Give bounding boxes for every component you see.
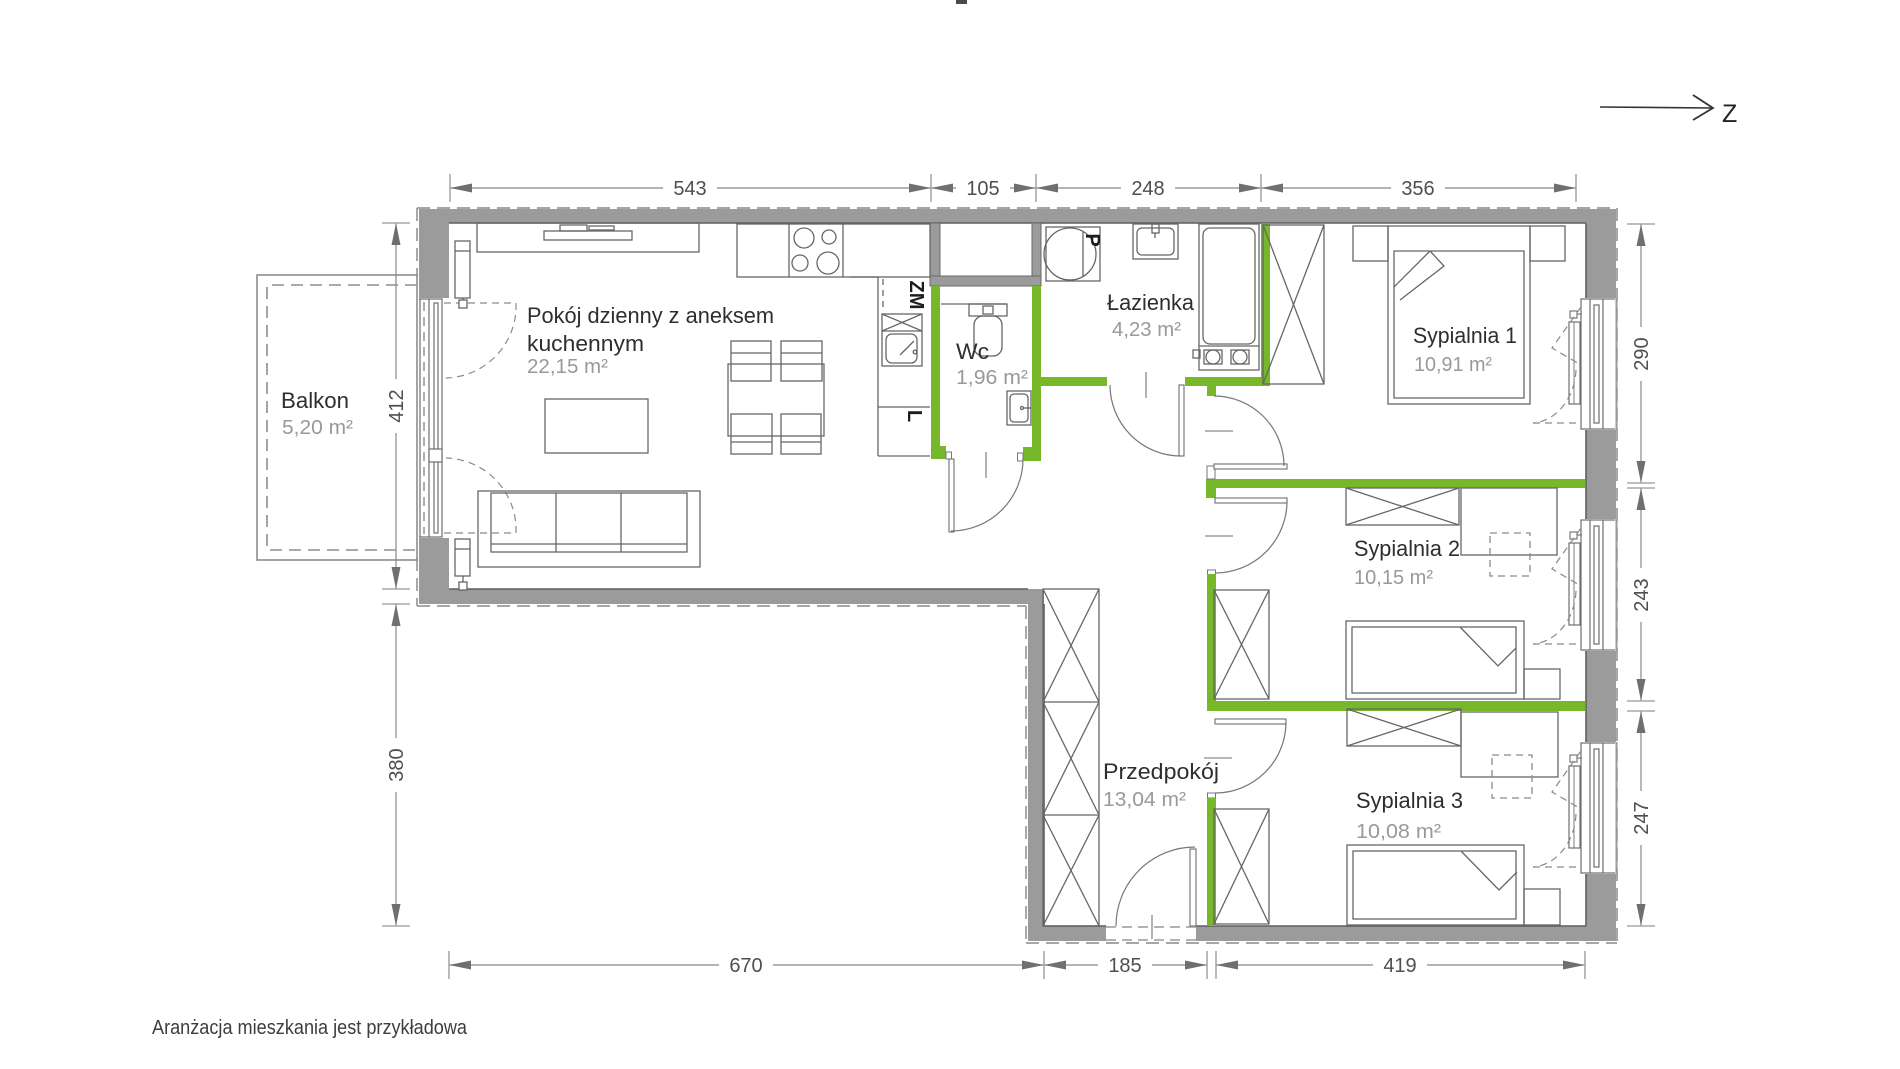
svg-text:670: 670 bbox=[729, 955, 762, 977]
svg-text:L: L bbox=[903, 410, 925, 422]
svg-text:5,20 m²: 5,20 m² bbox=[282, 416, 353, 439]
svg-text:10,91 m²: 10,91 m² bbox=[1414, 353, 1492, 376]
svg-text:543: 543 bbox=[673, 178, 706, 200]
svg-text:Przedpokój: Przedpokój bbox=[1103, 759, 1219, 784]
svg-text:4,23 m²: 4,23 m² bbox=[1112, 318, 1181, 341]
svg-text:419: 419 bbox=[1383, 955, 1416, 977]
svg-text:356: 356 bbox=[1401, 178, 1434, 200]
svg-text:412: 412 bbox=[386, 389, 408, 422]
svg-text:13,04 m²: 13,04 m² bbox=[1103, 788, 1186, 811]
svg-text:10,08 m²: 10,08 m² bbox=[1356, 820, 1441, 843]
svg-text:Łazienka: Łazienka bbox=[1107, 290, 1194, 315]
svg-text:Balkon: Balkon bbox=[281, 388, 349, 413]
svg-text:ZM: ZM bbox=[905, 281, 927, 310]
svg-text:Aranżacja mieszkania jest przy: Aranżacja mieszkania jest przykładowa bbox=[152, 1017, 468, 1039]
svg-text:22,15 m²: 22,15 m² bbox=[527, 355, 608, 378]
svg-text:Sypialnia 3: Sypialnia 3 bbox=[1356, 788, 1463, 813]
svg-text:1,96 m²: 1,96 m² bbox=[956, 366, 1028, 389]
svg-text:Sypialnia 2: Sypialnia 2 bbox=[1354, 536, 1460, 561]
svg-text:248: 248 bbox=[1131, 178, 1164, 200]
svg-text:P: P bbox=[1081, 233, 1103, 246]
svg-text:290: 290 bbox=[1631, 337, 1653, 370]
svg-text:243: 243 bbox=[1631, 578, 1653, 611]
svg-text:10,15 m²: 10,15 m² bbox=[1354, 566, 1433, 589]
svg-text:380: 380 bbox=[386, 748, 408, 781]
svg-text:kuchennym: kuchennym bbox=[527, 331, 644, 356]
svg-text:185: 185 bbox=[1108, 955, 1141, 977]
svg-text:Z: Z bbox=[1722, 100, 1737, 128]
svg-text:Sypialnia 1: Sypialnia 1 bbox=[1413, 323, 1517, 348]
svg-text:Pokój dzienny z aneksem: Pokój dzienny z aneksem bbox=[527, 303, 774, 328]
svg-text:247: 247 bbox=[1631, 801, 1653, 834]
svg-text:105: 105 bbox=[966, 178, 999, 200]
svg-text:Wc: Wc bbox=[956, 339, 989, 364]
